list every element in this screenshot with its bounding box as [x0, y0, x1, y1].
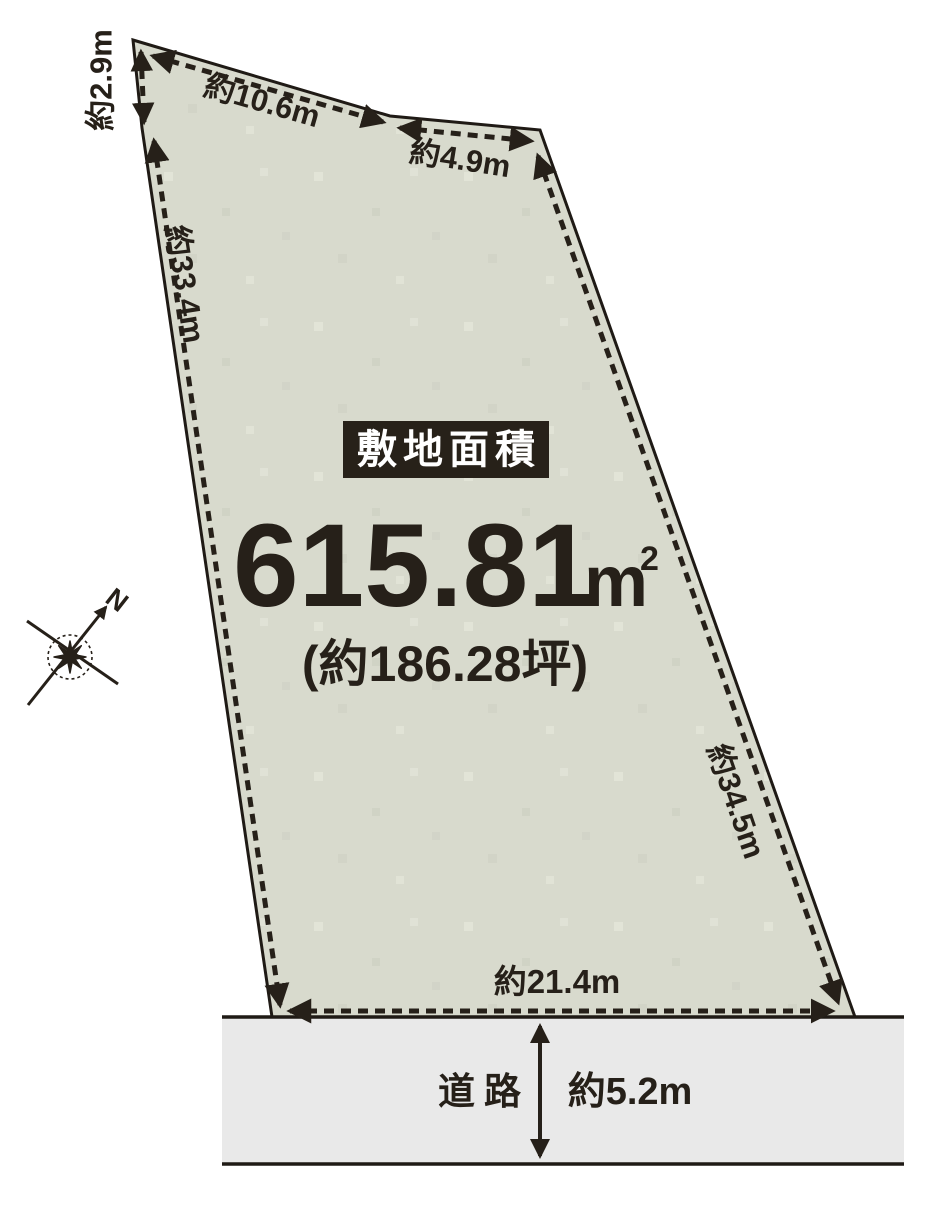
area-badge-label: 敷地面積: [357, 428, 541, 472]
area-unit-superscript: 2: [640, 540, 659, 578]
area-value: 615.81: [233, 500, 594, 632]
road: [222, 1017, 904, 1164]
land-plot-diagram: 約2.9m 約10.6m 約4.9m 約33.4m 約34.5m 約21.4m …: [0, 0, 946, 1208]
area-unit: m: [584, 542, 648, 622]
road-surface: [222, 1017, 904, 1164]
dim-label-top-left-edge: 約2.9m: [84, 29, 119, 131]
road-label: 道路: [438, 1071, 530, 1112]
compass-north-label: N: [100, 582, 134, 618]
road-width-label: 約5.2m: [568, 1071, 693, 1113]
dim-label-bottom-edge: 約21.4m: [494, 963, 621, 1000]
compass-star-icon: [54, 641, 86, 673]
area-badge: 敷地面積: [343, 421, 549, 478]
area-tsubo: (約186.28坪): [302, 636, 588, 692]
compass: N: [27, 582, 134, 705]
site-plan-svg: 約2.9m 約10.6m 約4.9m 約33.4m 約34.5m 約21.4m …: [0, 0, 946, 1208]
